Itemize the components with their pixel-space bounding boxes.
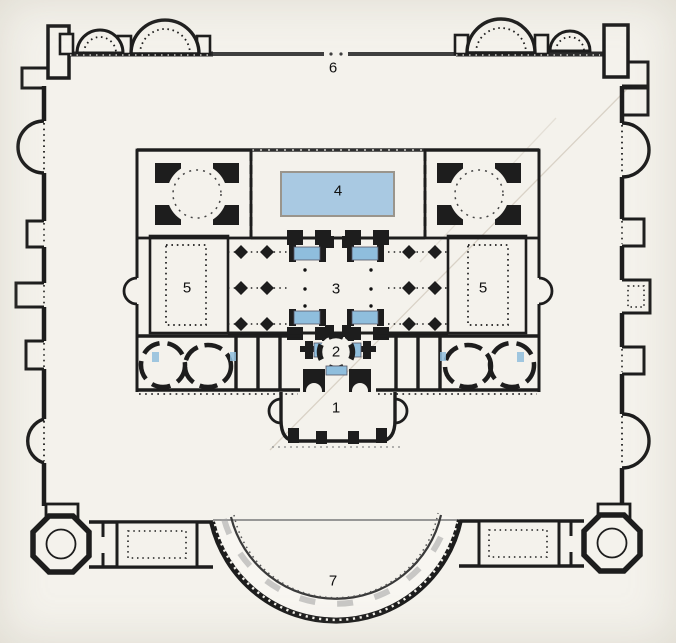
column-hall-right bbox=[388, 245, 448, 331]
south-wing-right bbox=[376, 336, 539, 394]
east-exedra-north bbox=[622, 123, 649, 177]
dome-small-right bbox=[550, 31, 590, 51]
label-area-2: 2 bbox=[332, 344, 340, 361]
floor-plan-drawing bbox=[0, 0, 676, 643]
label-area-7: 7 bbox=[329, 573, 337, 590]
frigidarium-pool-nw bbox=[294, 247, 320, 260]
precinct-north-wall bbox=[22, 19, 648, 88]
column-hall-left bbox=[228, 245, 288, 331]
south-hall-right bbox=[479, 521, 559, 566]
label-area-1: 1 bbox=[332, 400, 340, 417]
west-exedra-south bbox=[28, 419, 44, 463]
north-pavilion-left bbox=[137, 150, 251, 238]
south-range bbox=[33, 504, 640, 572]
theater-hemicycle bbox=[212, 513, 460, 621]
label-area-3: 3 bbox=[332, 281, 340, 298]
label-area-4: 4 bbox=[334, 183, 342, 200]
label-area-5-right: 5 bbox=[479, 280, 487, 297]
precinct-west-wall bbox=[16, 86, 44, 506]
label-area-5-left: 5 bbox=[183, 280, 191, 297]
tepidarium-pool-south bbox=[326, 366, 347, 375]
frigidarium-pool-ne bbox=[352, 247, 378, 260]
dome-small-left bbox=[77, 30, 123, 53]
south-wing-left bbox=[137, 336, 300, 394]
east-exedra-south bbox=[622, 414, 649, 468]
frigidarium-pool-se bbox=[352, 311, 378, 324]
label-area-6: 6 bbox=[329, 60, 337, 77]
northeast-tower bbox=[604, 25, 628, 77]
west-exedra-north bbox=[18, 121, 44, 173]
floor-plan-page: 1 2 3 4 5 5 6 7 bbox=[0, 0, 676, 643]
precinct-east-wall bbox=[622, 86, 650, 505]
frigidarium-pool-sw bbox=[294, 311, 320, 324]
south-hall-left bbox=[117, 522, 197, 567]
north-pavilion-right bbox=[425, 150, 539, 238]
